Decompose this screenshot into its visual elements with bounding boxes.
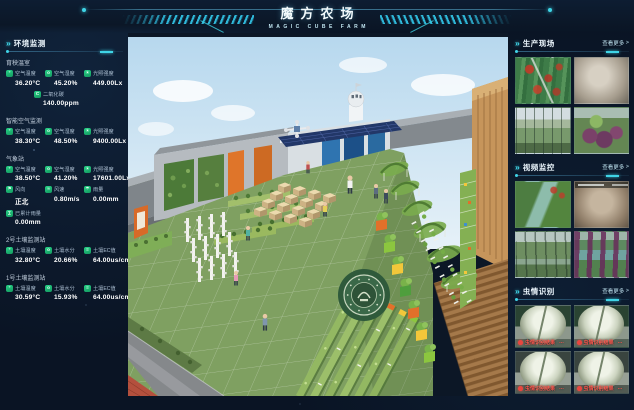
soil2-metrics: 土壤温度32.80°C 土壤水分20.66% 土壤EC值64.00us/cm — [6, 247, 123, 268]
production-cam-3[interactable] — [515, 107, 571, 154]
bug-icon — [577, 386, 582, 391]
section-name-weather-station: 气象站 — [6, 154, 123, 163]
section-name-smart-air: 智能空气监测 — [6, 116, 123, 125]
insect-trap-1[interactable]: 虫情识别结果… — [515, 305, 571, 348]
bug-icon — [518, 340, 523, 345]
app-title-block: 魔方农场 MAGIC CUBE FARM — [217, 3, 417, 30]
metric-soil-moisture: 土壤水分20.66% — [45, 247, 84, 264]
app-subtitle: MAGIC CUBE FARM — [217, 24, 417, 30]
barn-building — [472, 77, 508, 271]
metric-rain: 雨量0.00mm — [84, 186, 123, 206]
humidity-icon — [45, 70, 52, 77]
trap-lens — [578, 351, 624, 389]
double-chevron-icon: » — [515, 39, 520, 48]
soil-temp-icon — [6, 247, 13, 254]
production-camera-grid — [515, 57, 629, 154]
video-section-title: 视频监控 — [523, 162, 555, 173]
metric-soil-temp: 土壤温度32.80°C — [6, 247, 45, 264]
metric-wind-speed: 风速0.80m/s — [45, 186, 84, 206]
insect-section-title: 虫情识别 — [523, 286, 555, 297]
insect-view-more-link[interactable]: 查看更多> — [602, 287, 629, 295]
soil-ec-icon — [84, 285, 91, 292]
video-cam-2[interactable] — [574, 181, 630, 228]
bug-icon — [577, 340, 582, 345]
metric-light: 光照强度449.00Lx — [84, 70, 123, 87]
nursery-metrics: 空气温度36.20°C 空气湿度45.20% 光照强度449.00Lx 二氧化碳… — [6, 70, 123, 111]
production-cam-1[interactable] — [515, 57, 571, 104]
metric-air-humidity: 空气湿度41.20% — [45, 166, 84, 183]
production-section-title: 生产现场 — [523, 38, 555, 49]
insect-trap-3[interactable]: 虫情识别结果… — [515, 351, 571, 394]
insect-trap-2[interactable]: 虫情识别结果… — [574, 305, 630, 348]
video-cam-3[interactable] — [515, 231, 571, 278]
metric-wind-direction: 风向正北 — [6, 186, 45, 206]
light-icon — [84, 128, 91, 135]
thermometer-icon — [6, 70, 13, 77]
thermometer-icon — [6, 166, 13, 173]
rain-icon — [84, 186, 91, 193]
metric-soil-moisture: 土壤水分15.93% — [45, 285, 84, 302]
soil-moisture-icon — [45, 247, 52, 254]
smart-air-metrics: 空气温度38.30°C 空气湿度48.50% 光照强度9400.00Lx — [6, 128, 123, 149]
env-panel-title: 环境监测 — [14, 38, 46, 49]
header: 魔方农场 MAGIC CUBE FARM — [0, 0, 634, 33]
metric-soil-ec: 土壤EC值64.00us/cm — [84, 247, 123, 264]
insect-alert: 虫情识别结果… — [518, 385, 568, 392]
insect-alert: 虫情识别结果… — [577, 385, 627, 392]
dashboard-root: 魔方农场 MAGIC CUBE FARM » 环境监测 育秧温室 空气温度36.… — [0, 0, 634, 410]
humidity-icon — [45, 128, 52, 135]
trap-lens — [578, 305, 624, 343]
soil-ec-icon — [84, 247, 91, 254]
section-name-soil-2: 2号土壤监测站 — [6, 235, 123, 244]
video-cam-4[interactable] — [574, 231, 630, 278]
metric-air-temp: 空气温度38.50°C — [6, 166, 45, 183]
metric-air-humidity: 空气湿度45.20% — [45, 70, 84, 87]
double-chevron-icon: » — [515, 163, 520, 172]
soil-temp-icon — [6, 285, 13, 292]
double-chevron-icon: » — [515, 287, 520, 296]
farm-3d-scene — [128, 33, 508, 396]
chevron-right-icon: > — [626, 164, 629, 170]
production-view-more-link[interactable]: 查看更多> — [602, 39, 629, 47]
soil1-metrics: 土壤温度30.59°C 土壤水分15.93% 土壤EC值64.00us/cm — [6, 285, 123, 306]
production-cam-2[interactable] — [574, 57, 630, 104]
humidity-icon — [45, 166, 52, 173]
farm-emblem — [338, 269, 390, 321]
metric-air-temp: 空气温度36.20°C — [6, 70, 45, 87]
section-name-nursery: 育秧温室 — [6, 58, 123, 67]
chevron-right-icon: > — [626, 40, 629, 46]
insect-trap-4[interactable]: 虫情识别结果… — [574, 351, 630, 394]
metric-soil-temp: 土壤温度30.59°C — [6, 285, 45, 302]
bug-icon — [518, 386, 523, 391]
wind-speed-icon — [45, 186, 52, 193]
metric-air-humidity: 空气湿度48.50% — [45, 128, 84, 145]
insect-trap-grid: 虫情识别结果… 虫情识别结果… 虫情识别结果… 虫情识别结果… — [515, 305, 629, 394]
monitoring-panel: » 生产现场 查看更多> » 视频监控 查看更多> — [511, 33, 634, 410]
metric-light: 光照强度9400.00Lx — [84, 128, 123, 145]
production-cam-4[interactable] — [574, 107, 630, 154]
trap-lens — [520, 305, 566, 343]
co2-icon — [34, 91, 41, 98]
trap-lens — [520, 351, 566, 389]
chevron-right-icon: > — [626, 288, 629, 294]
weather-metrics: 空气温度38.50°C 空气湿度41.20% 光照强度17601.00Lx 风向… — [6, 166, 123, 231]
video-camera-grid — [515, 181, 629, 278]
double-chevron-icon: » — [6, 39, 11, 48]
metric-light: 光照强度17601.00Lx — [84, 166, 123, 183]
farm-3d-viewport[interactable] — [128, 33, 508, 396]
metric-air-temp: 空气温度38.30°C — [6, 128, 45, 145]
env-monitor-panel: » 环境监测 育秧温室 空气温度36.20°C 空气湿度45.20% 光照强度4… — [0, 33, 128, 410]
metric-rain-total: 已累计雨量0.00mm — [6, 210, 83, 227]
soil-moisture-icon — [45, 285, 52, 292]
light-icon — [84, 70, 91, 77]
info-kiosk — [134, 205, 148, 239]
video-view-more-link[interactable]: 查看更多> — [602, 163, 629, 171]
thermometer-icon — [6, 128, 13, 135]
video-cam-1[interactable] — [515, 181, 571, 228]
metric-co2: 二氧化碳140.00ppm — [6, 91, 83, 108]
light-icon — [84, 166, 91, 173]
section-name-soil-1: 1号土壤监测站 — [6, 273, 123, 282]
metric-soil-ec: 土壤EC值64.00us/cm — [84, 285, 123, 302]
rain-total-icon — [6, 210, 13, 217]
wind-direction-icon — [6, 186, 13, 193]
insect-alert: 虫情识别结果… — [577, 339, 627, 346]
app-title: 魔方农场 — [217, 3, 417, 22]
insect-alert: 虫情识别结果… — [518, 339, 568, 346]
